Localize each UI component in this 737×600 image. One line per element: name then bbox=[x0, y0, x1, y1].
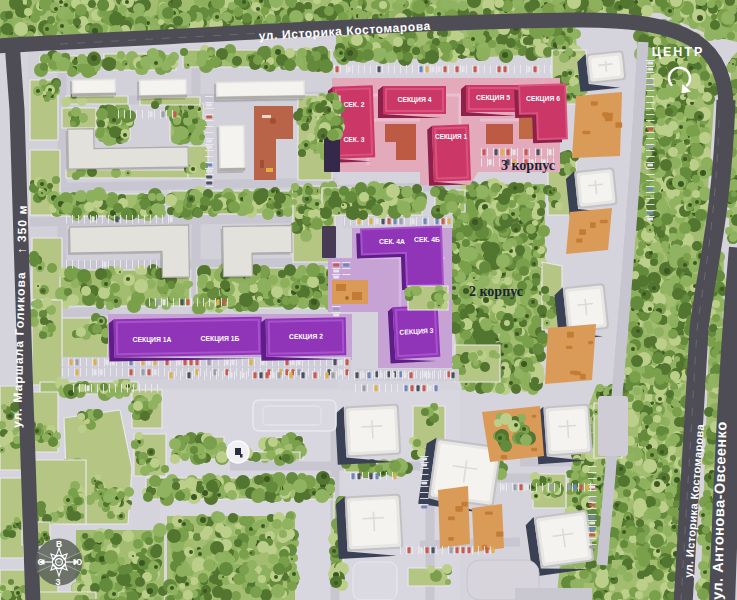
svg-text:З: З bbox=[55, 577, 60, 587]
svg-text:СЕКЦИЯ 1Б: СЕКЦИЯ 1Б bbox=[201, 335, 240, 343]
svg-text:В: В bbox=[56, 539, 62, 549]
svg-text:С: С bbox=[37, 557, 43, 567]
svg-text:СЕК. 4Б: СЕК. 4Б bbox=[414, 236, 440, 243]
svg-text:СЕКЦИЯ 1А: СЕКЦИЯ 1А bbox=[133, 336, 172, 344]
svg-text:2 корпус: 2 корпус bbox=[469, 284, 523, 299]
svg-text:3 корпус: 3 корпус bbox=[501, 158, 555, 173]
svg-text:СЕКЦИЯ 4: СЕКЦИЯ 4 bbox=[398, 96, 432, 104]
svg-text:СЕКЦИЯ 1: СЕКЦИЯ 1 bbox=[435, 133, 467, 141]
svg-text:СЕКЦИЯ 6: СЕКЦИЯ 6 bbox=[526, 95, 560, 103]
svg-text:СЕКЦИЯ 5: СЕКЦИЯ 5 bbox=[476, 94, 510, 102]
svg-text:ЦЕНТР: ЦЕНТР bbox=[652, 45, 704, 59]
svg-text:СЕК. 2: СЕК. 2 bbox=[343, 101, 364, 108]
svg-text:СЕК. 3: СЕК. 3 bbox=[343, 136, 364, 143]
svg-text:Ю: Ю bbox=[74, 557, 83, 567]
svg-text:СЕК. 4А: СЕК. 4А bbox=[379, 238, 405, 245]
